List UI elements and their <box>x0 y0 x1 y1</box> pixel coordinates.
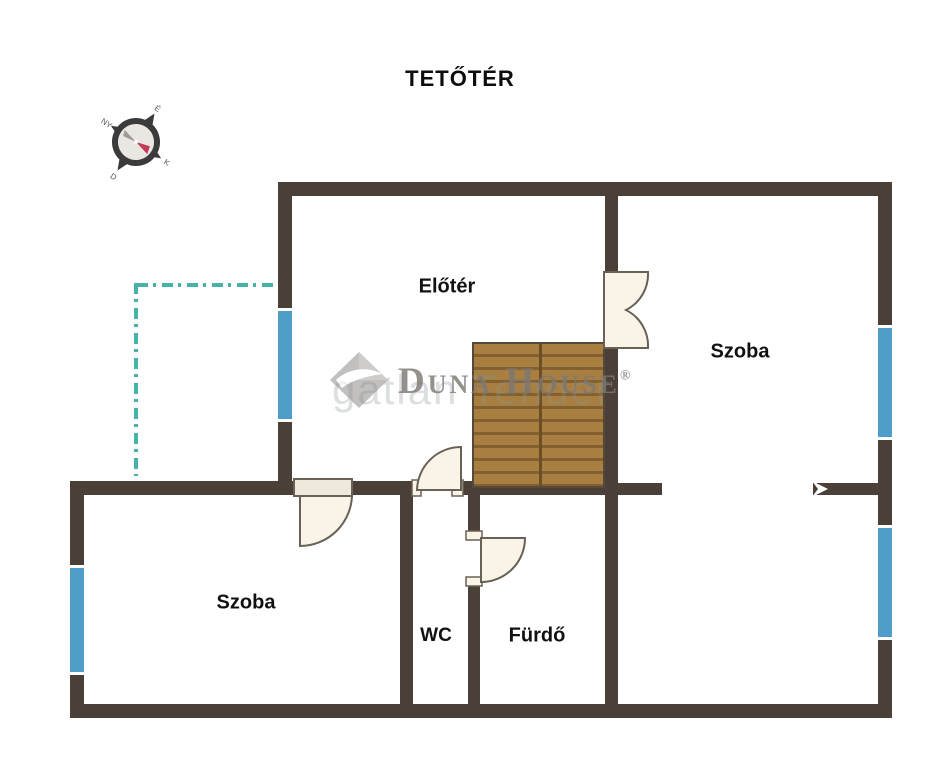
watermark-logo-icon <box>328 350 390 410</box>
door-szoba-left-arc <box>300 494 352 546</box>
wall-break-notch <box>812 481 828 497</box>
floorplan-canvas: TETŐTÉR É K D NY <box>0 0 936 768</box>
door-furdo-hinge-bottom <box>466 577 482 586</box>
door-szoba-right-double <box>604 272 648 348</box>
door-szoba-left-leaf <box>294 479 352 496</box>
door-furdo-hinge-top <box>466 531 482 540</box>
door-wc-arc <box>417 447 461 490</box>
watermark-registered-mark: ® <box>620 369 633 384</box>
watermark-brand: Duna House® <box>398 360 633 403</box>
door-furdo-arc <box>481 538 525 582</box>
watermark-brand-name: Duna House <box>398 361 620 402</box>
